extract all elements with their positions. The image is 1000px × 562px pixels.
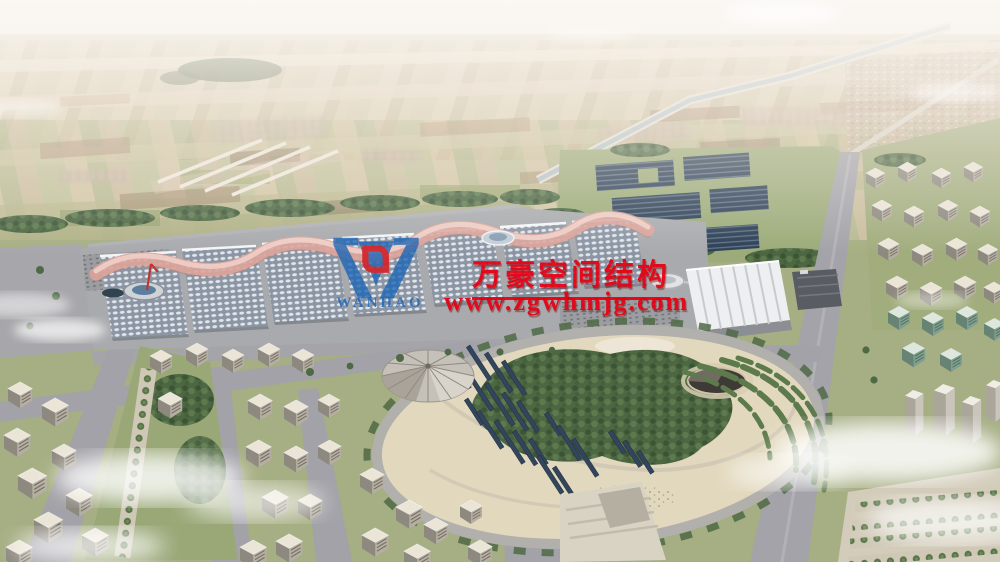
wanhao-w-logo [328, 236, 424, 300]
aerial-architectural-rendering: WANHAO 万豪空间结构 www.zgwhmjg.com [0, 0, 1000, 562]
watermark-website-url: www.zgwhmjg.com [444, 287, 689, 317]
watermark-logo-text: WANHAO [330, 295, 430, 312]
